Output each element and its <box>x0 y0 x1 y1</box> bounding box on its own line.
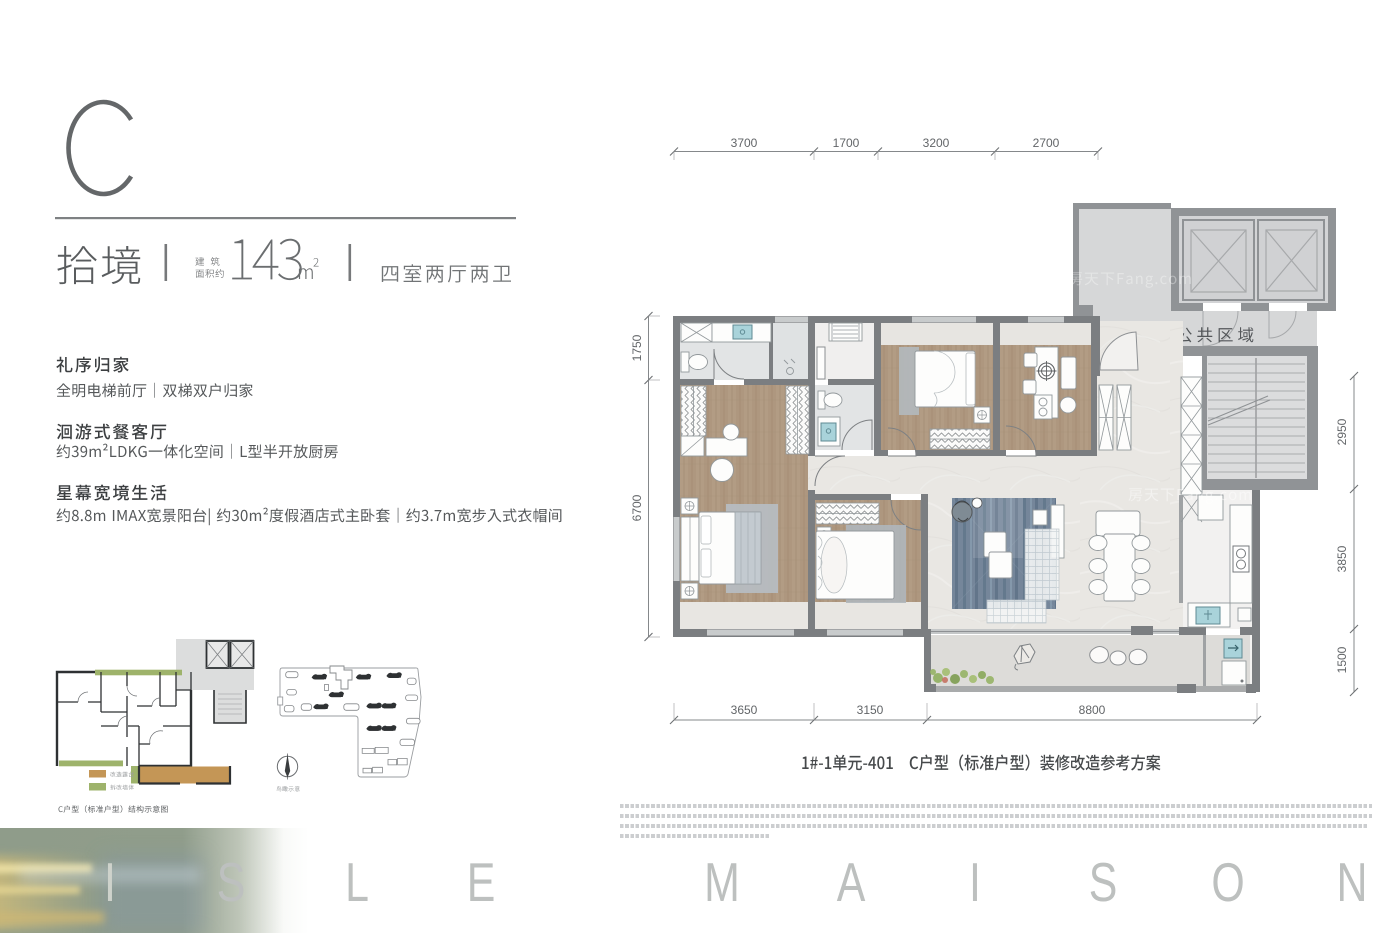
svg-text:1700: 1700 <box>833 136 860 150</box>
svg-text:3650: 3650 <box>731 703 758 717</box>
svg-text:3200: 3200 <box>923 136 950 150</box>
svg-text:6700: 6700 <box>630 494 644 521</box>
svg-text:2950: 2950 <box>1335 418 1349 445</box>
svg-text:8800: 8800 <box>1079 703 1106 717</box>
svg-text:1500: 1500 <box>1335 646 1349 673</box>
svg-text:2700: 2700 <box>1033 136 1060 150</box>
svg-text:3150: 3150 <box>857 703 884 717</box>
svg-text:1750: 1750 <box>630 334 644 361</box>
svg-text:3700: 3700 <box>731 136 758 150</box>
svg-text:3850: 3850 <box>1335 545 1349 572</box>
